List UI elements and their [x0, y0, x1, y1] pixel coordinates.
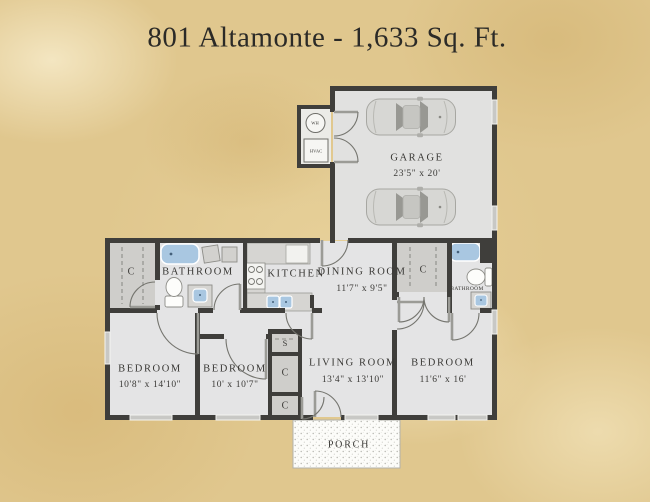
car-icon [367, 187, 456, 227]
kitchen-label: KITCHEN [267, 269, 324, 280]
closet-marker: C [282, 368, 289, 379]
living-room-label: LIVING ROOM [309, 358, 397, 369]
garage-dimensions: 23'5" x 20' [393, 169, 440, 179]
bathtub-icon [450, 243, 480, 261]
toilet-icon [165, 278, 183, 308]
stove-icon [246, 263, 265, 289]
closet-marker: C [128, 267, 135, 278]
window [492, 100, 497, 124]
window [428, 415, 455, 420]
water-heater-label: WH [311, 121, 319, 126]
bathtub-icon [161, 244, 199, 264]
bedroom2-dimensions: 10' x 10'7" [211, 380, 258, 390]
car-icon [367, 97, 456, 137]
bathroom2-label: BATHROOM [450, 286, 483, 292]
hvac-label: HVAC [310, 149, 322, 154]
garage-label: GARAGE [390, 153, 443, 164]
floor-plan-page: 801 Altamonte - 1,633 Sq. Ft. [0, 0, 650, 502]
living-room-dimensions: 13'4" x 13'10" [322, 375, 384, 385]
kitchen-sink-icon [267, 296, 292, 308]
bedroom3-label: BEDROOM [411, 358, 475, 369]
window [216, 415, 260, 420]
shelf-marker: S [283, 338, 288, 348]
bathroom1-label: BATHROOM [162, 267, 234, 278]
porch-label: PORCH [328, 440, 370, 451]
bedroom3-dimensions: 11'6" x 16' [420, 375, 467, 385]
window [345, 415, 378, 420]
floor-plan-drawing [0, 0, 650, 502]
bedroom2-label: BEDROOM [203, 364, 267, 375]
toilet-icon [467, 268, 492, 286]
closet-marker: C [420, 265, 427, 276]
window [130, 415, 172, 420]
dining-room-dimensions: 11'7" x 9'5" [336, 284, 387, 294]
sink-icon [188, 285, 212, 307]
bedroom1-dimensions: 10'8" x 14'10" [119, 380, 181, 390]
bedroom1-label: BEDROOM [118, 364, 182, 375]
window [105, 332, 110, 364]
window [492, 206, 497, 230]
closet-marker: C [282, 401, 289, 412]
dining-room-label: DINING ROOM [317, 267, 406, 278]
window [458, 415, 487, 420]
window [492, 310, 497, 334]
sink-icon [471, 292, 491, 309]
